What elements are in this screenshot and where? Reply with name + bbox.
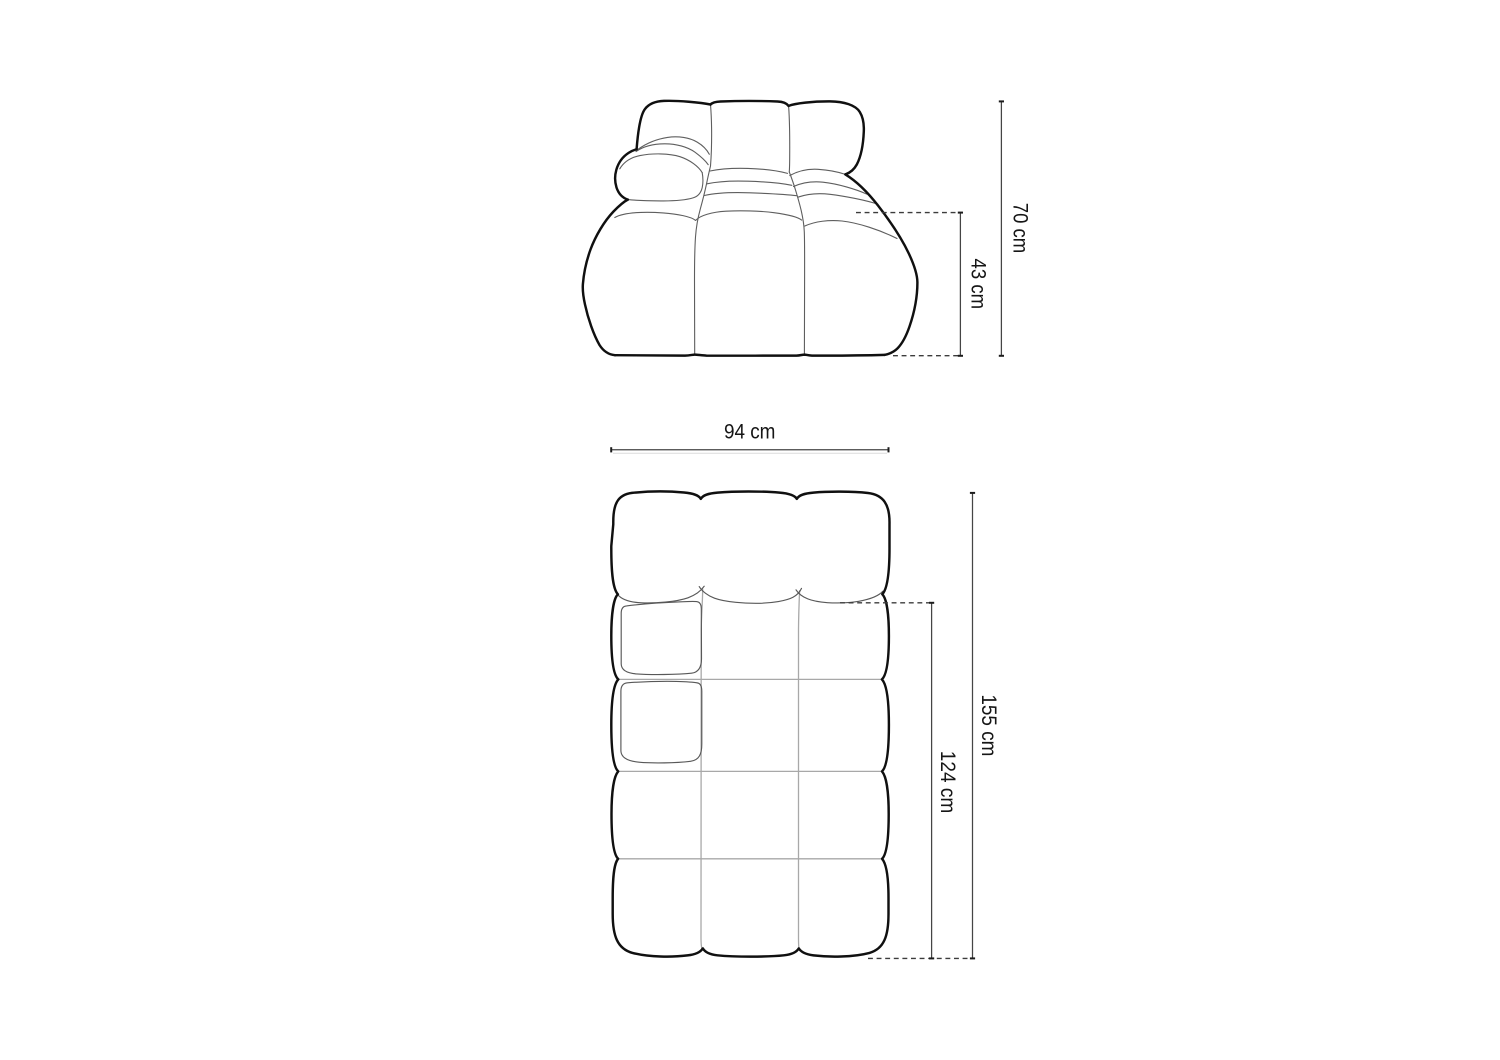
svg-text:155 cm: 155 cm <box>977 694 1000 756</box>
svg-text:43 cm: 43 cm <box>966 259 989 310</box>
svg-text:124 cm: 124 cm <box>936 751 959 814</box>
svg-text:70 cm: 70 cm <box>1008 203 1031 254</box>
svg-text:94 cm: 94 cm <box>724 420 776 443</box>
